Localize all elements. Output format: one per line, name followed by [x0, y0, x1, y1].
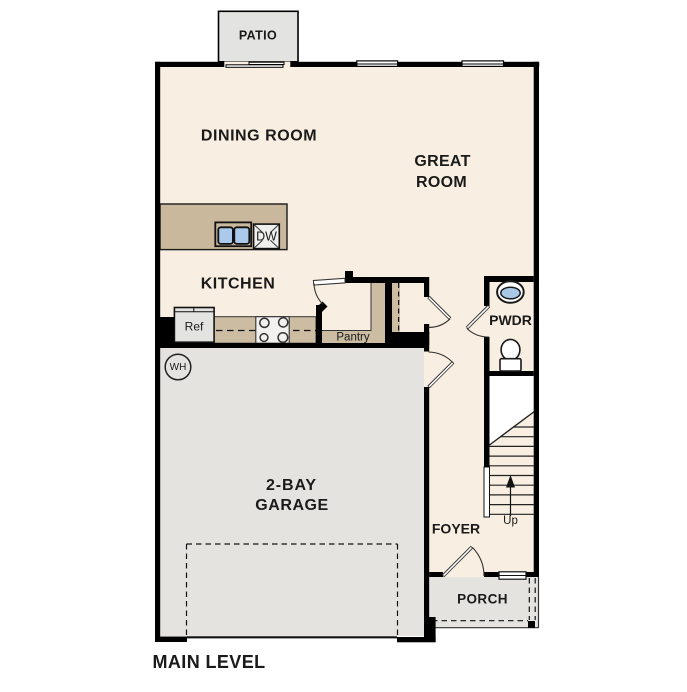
svg-text:Pantry: Pantry [336, 332, 369, 344]
svg-text:Ref: Ref [185, 320, 204, 334]
svg-text:2-BAY: 2-BAY [266, 477, 317, 494]
svg-text:DW: DW [256, 230, 277, 244]
svg-text:GREAT: GREAT [414, 153, 470, 170]
svg-text:WH: WH [170, 362, 187, 373]
svg-text:MAIN LEVEL: MAIN LEVEL [153, 652, 266, 672]
svg-text:ROOM: ROOM [416, 174, 467, 191]
svg-text:DINING ROOM: DINING ROOM [201, 128, 317, 145]
svg-text:GARAGE: GARAGE [255, 497, 329, 514]
svg-text:PORCH: PORCH [457, 591, 508, 606]
svg-text:PWDR: PWDR [489, 312, 532, 328]
svg-text:KITCHEN: KITCHEN [201, 276, 276, 293]
svg-text:PATIO: PATIO [239, 29, 277, 43]
svg-text:Up: Up [503, 515, 518, 527]
svg-text:FOYER: FOYER [432, 521, 480, 537]
